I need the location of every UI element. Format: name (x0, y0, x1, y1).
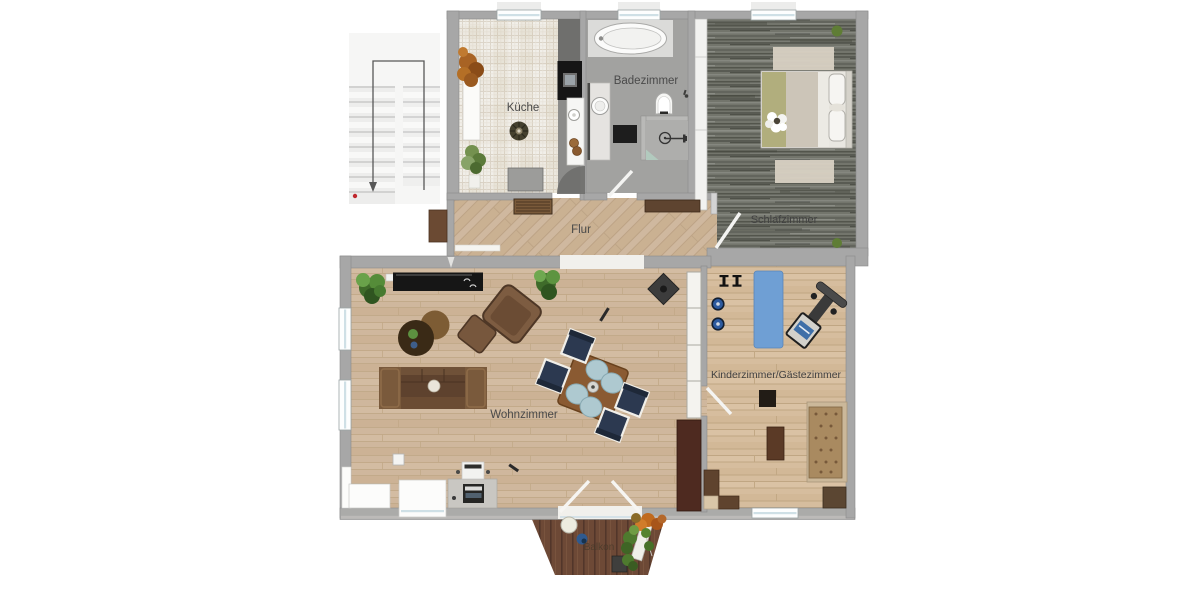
svg-text:Küche: Küche (507, 102, 540, 114)
svg-text:Badezimmer: Badezimmer (614, 75, 679, 87)
svg-text:Flur: Flur (571, 224, 591, 236)
svg-text:Kinderzimmer/Gästezimmer: Kinderzimmer/Gästezimmer (711, 369, 842, 381)
svg-text:Balkon: Balkon (584, 542, 615, 553)
svg-text:Schlafzimmer: Schlafzimmer (751, 214, 818, 226)
svg-text:Wohnzimmer: Wohnzimmer (490, 409, 558, 421)
